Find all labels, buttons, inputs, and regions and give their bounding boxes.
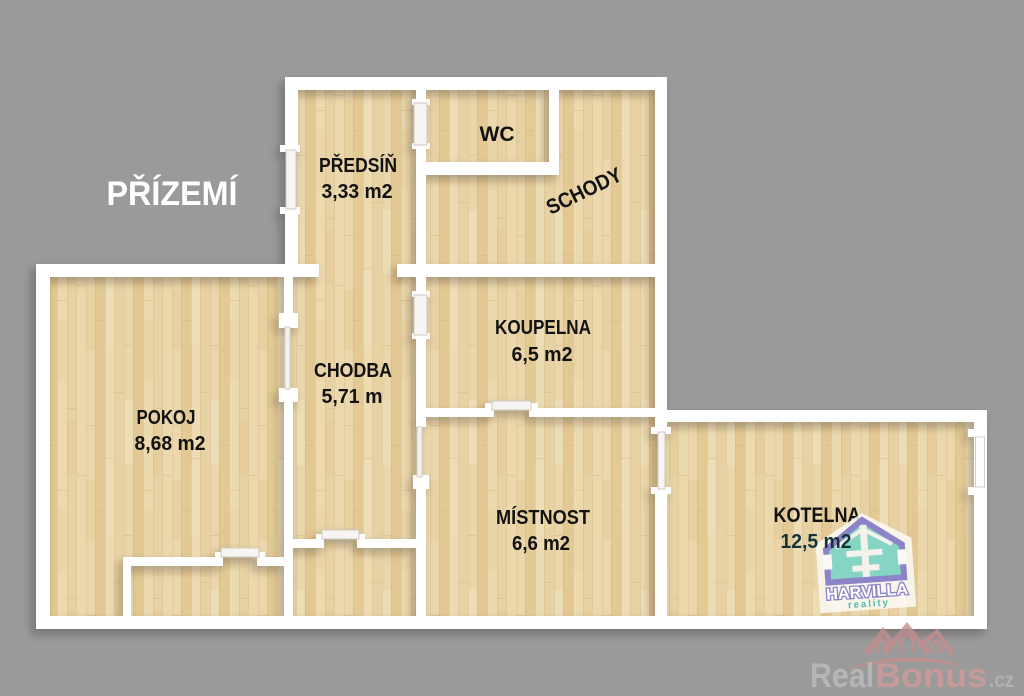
svg-text:KOUPELNA: KOUPELNA [495, 317, 591, 339]
svg-text:WC: WC [480, 123, 515, 146]
svg-text:MÍSTNOST: MÍSTNOST [496, 506, 590, 529]
svg-text:8,68 m2: 8,68 m2 [135, 433, 206, 455]
svg-text:6,5 m2: 6,5 m2 [512, 344, 573, 366]
svg-text:6,6 m2: 6,6 m2 [512, 533, 570, 555]
svg-text:PŘEDSÍŇ: PŘEDSÍŇ [319, 153, 397, 177]
svg-text:PŘÍZEMÍ: PŘÍZEMÍ [107, 175, 239, 213]
svg-text:Bonus: Bonus [875, 657, 987, 695]
svg-text:POKOJ: POKOJ [137, 407, 196, 429]
svg-text:5,71 m: 5,71 m [322, 386, 383, 408]
svg-text:CHODBA: CHODBA [314, 360, 392, 382]
svg-text:Real: Real [810, 657, 874, 695]
svg-text:.cz: .cz [989, 669, 1014, 692]
svg-text:3,33 m2: 3,33 m2 [322, 181, 393, 203]
svg-text:12,5 m2: 12,5 m2 [781, 531, 852, 553]
